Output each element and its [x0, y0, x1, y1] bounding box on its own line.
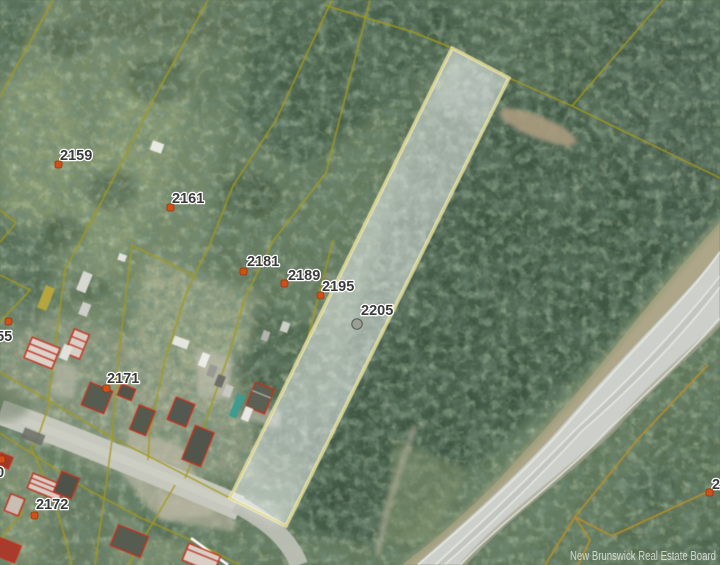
svg-text:New Brunswick Real Estate Boar: New Brunswick Real Estate Board	[570, 549, 716, 563]
svg-text:2189: 2189	[288, 268, 320, 284]
svg-text:2205: 2205	[361, 303, 393, 319]
svg-text:2181: 2181	[247, 254, 279, 270]
svg-text:2159: 2159	[60, 148, 92, 164]
svg-text:70: 70	[0, 465, 4, 481]
svg-text:255: 255	[0, 329, 12, 345]
svg-text:2195: 2195	[322, 279, 354, 295]
svg-text:2161: 2161	[172, 191, 204, 207]
svg-text:2172: 2172	[36, 497, 68, 513]
svg-text:2171: 2171	[107, 371, 139, 387]
